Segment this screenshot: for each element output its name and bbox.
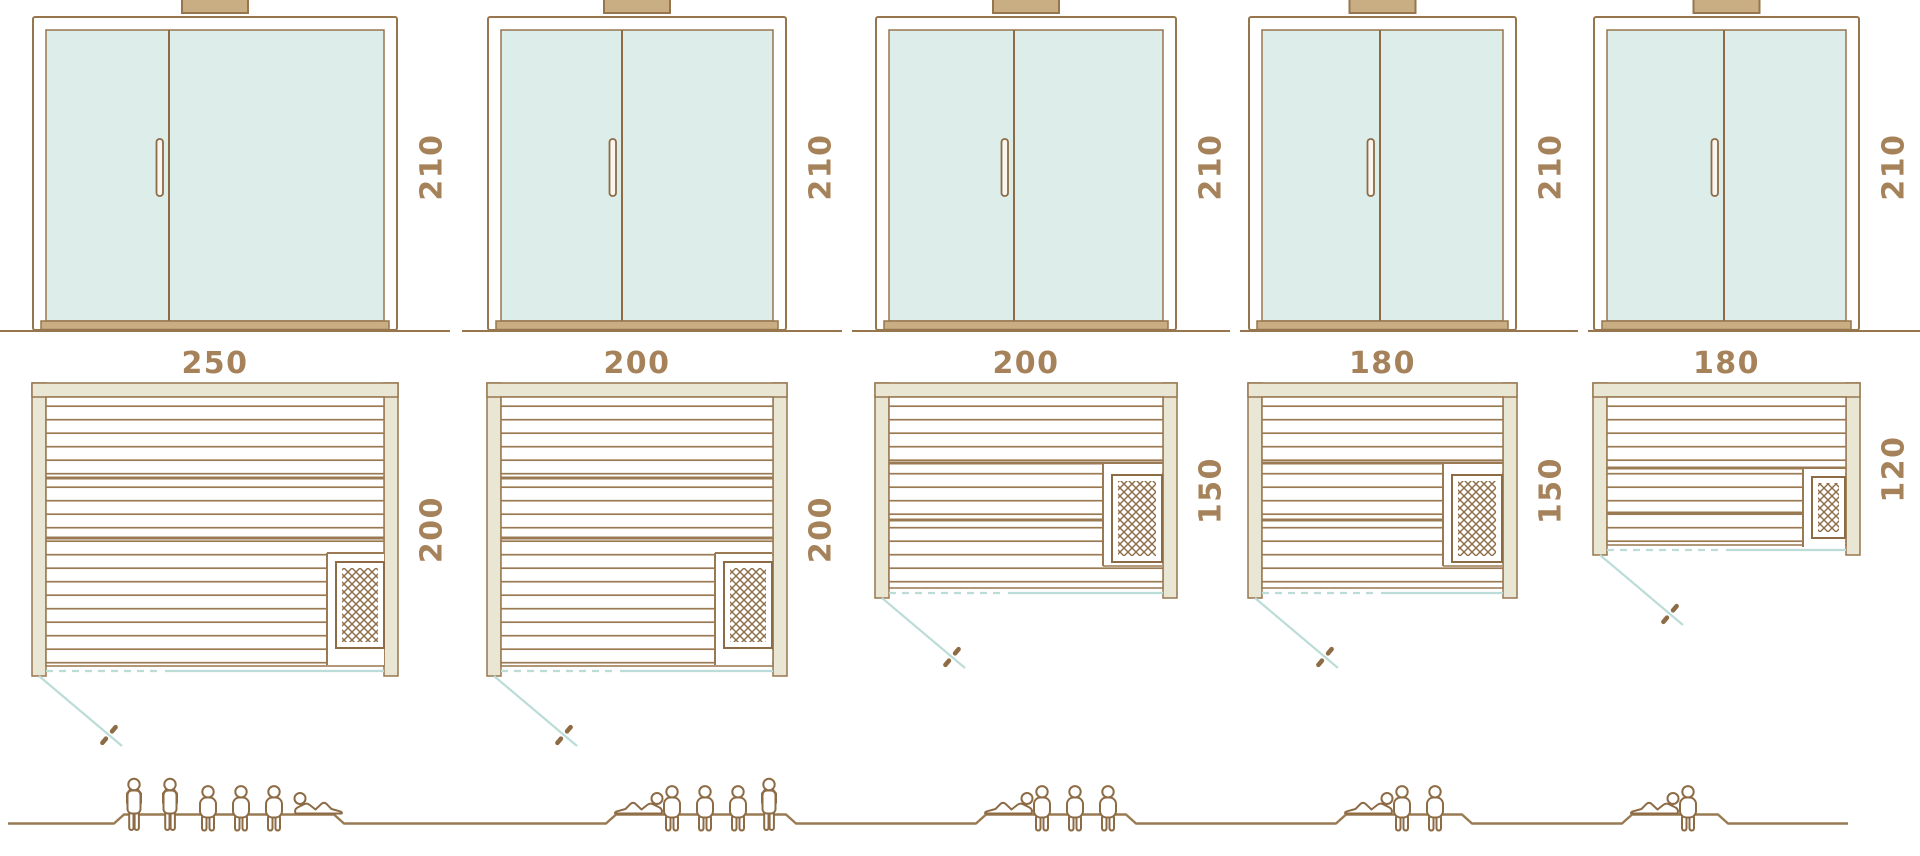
door-swing-line: [494, 676, 577, 746]
plan-wall-right: [1846, 383, 1860, 555]
capacity-figures: [615, 779, 776, 831]
plan-wall-top: [1593, 383, 1860, 397]
person-standing: [762, 779, 776, 830]
plan-depth-label: 200: [804, 496, 839, 563]
door-glass: [501, 30, 773, 321]
sauna-column-5: 210 180 120: [1588, 0, 1920, 831]
plan-wall-left: [32, 383, 46, 676]
plan-wall-left: [1593, 383, 1607, 555]
person-seated: [1680, 786, 1696, 830]
door-glass: [889, 30, 1163, 321]
diagram-canvas: 210 250 200 210 200 200 210 200 150 210 …: [0, 0, 1920, 856]
plan-depth-label: 120: [1877, 435, 1912, 502]
capacity-figures: [985, 786, 1116, 830]
person-reclining: [1631, 793, 1678, 814]
plan-wall-top: [32, 383, 398, 397]
roof-vent: [604, 0, 670, 13]
heater-grid: [342, 568, 378, 642]
sauna-column-2: 210 200 200: [462, 0, 842, 831]
plan-depth-label: 200: [415, 496, 450, 563]
sauna-column-3: 210 200 150: [852, 0, 1230, 831]
door-sill: [1257, 321, 1508, 330]
person-reclining: [615, 793, 662, 814]
door-swing-line: [1600, 555, 1683, 625]
roof-vent: [1694, 0, 1760, 13]
heater-grid: [1118, 481, 1156, 556]
heater-grid: [730, 568, 766, 642]
plan-wall-left: [875, 383, 889, 598]
plan-wall-left: [1248, 383, 1262, 598]
plan-width-label: 250: [181, 346, 248, 381]
person-standing: [163, 779, 177, 830]
plan-width-label: 200: [603, 346, 670, 381]
door-sill: [884, 321, 1168, 330]
floor-plan: [1248, 383, 1517, 668]
floor-plan: [1593, 383, 1860, 625]
door-sill: [496, 321, 778, 330]
person-seated: [664, 786, 680, 830]
person-seated: [1034, 786, 1050, 830]
capacity-figures: [1631, 786, 1696, 830]
door-sill: [41, 321, 389, 330]
capacity-figures: [127, 779, 342, 831]
door-handle: [610, 139, 617, 196]
door-elevation: [0, 0, 450, 331]
door-height-label: 210: [1534, 133, 1569, 200]
person-reclining: [295, 793, 342, 814]
plan-wall-right: [384, 383, 398, 676]
door-height-label: 210: [415, 133, 450, 200]
heater-grid: [1458, 481, 1496, 556]
door-swing-line: [1255, 598, 1338, 668]
plan-depth-label: 150: [1194, 457, 1229, 524]
person-seated: [266, 786, 282, 830]
person-seated: [730, 786, 746, 830]
person-standing: [127, 779, 141, 830]
plan-wall-right: [1503, 383, 1517, 598]
plan-wall-top: [1248, 383, 1517, 397]
door-height-label: 210: [1877, 133, 1912, 200]
roof-vent: [1350, 0, 1416, 13]
plan-wall-top: [487, 383, 787, 397]
person-seated: [1427, 786, 1443, 830]
door-elevation: [1588, 0, 1920, 331]
door-swing-line: [39, 676, 122, 746]
plan-width-label: 180: [1349, 346, 1416, 381]
capacity-figures: [1345, 786, 1443, 830]
floor-plan: [32, 383, 398, 746]
ground-line: [8, 815, 1848, 824]
plan-wall-left: [487, 383, 501, 676]
person-reclining: [985, 793, 1032, 814]
plan-depth-label: 150: [1534, 457, 1569, 524]
plan-wall-top: [875, 383, 1177, 397]
door-handle: [1712, 139, 1719, 196]
door-handle: [1002, 139, 1009, 196]
plan-wall-right: [773, 383, 787, 676]
plan-width-label: 180: [1693, 346, 1760, 381]
person-seated: [200, 786, 216, 830]
person-seated: [697, 786, 713, 830]
door-handle: [157, 139, 164, 196]
person-seated: [1100, 786, 1116, 830]
sauna-column-4: 210 180 150: [1240, 0, 1578, 831]
door-elevation: [1240, 0, 1578, 331]
sauna-column-1: 210 250 200: [0, 0, 450, 831]
sauna-size-diagram: 210 250 200 210 200 200 210 200 150 210 …: [0, 0, 1920, 856]
door-sill: [1602, 321, 1851, 330]
person-reclining: [1345, 793, 1392, 814]
door-handle: [1368, 139, 1375, 196]
door-glass: [1607, 30, 1846, 321]
door-swing-line: [882, 598, 965, 668]
floor-plan: [487, 383, 787, 746]
person-seated: [1067, 786, 1083, 830]
heater-grid: [1818, 483, 1839, 532]
door-elevation: [852, 0, 1230, 331]
roof-vent: [182, 0, 248, 13]
roof-vent: [993, 0, 1059, 13]
door-height-label: 210: [804, 133, 839, 200]
door-glass: [1262, 30, 1503, 321]
door-glass: [46, 30, 384, 321]
door-height-label: 210: [1194, 133, 1229, 200]
person-seated: [1394, 786, 1410, 830]
door-elevation: [462, 0, 842, 331]
floor-plan: [875, 383, 1177, 668]
plan-wall-right: [1163, 383, 1177, 598]
plan-width-label: 200: [992, 346, 1059, 381]
person-seated: [233, 786, 249, 830]
